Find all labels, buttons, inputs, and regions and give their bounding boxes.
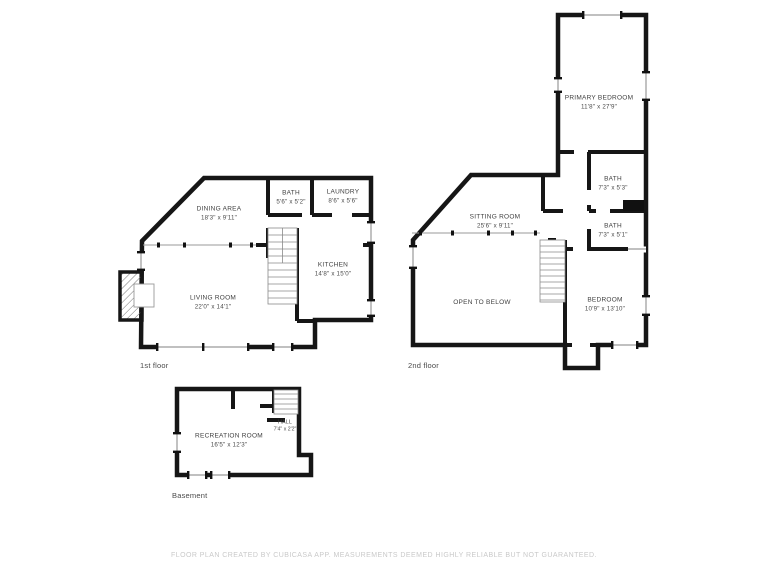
- room-label-bath-lower: BATH 7'3" x 5'1": [598, 221, 627, 240]
- basement-staircase: [274, 390, 298, 414]
- room-label-sitting-room: SITTING ROOM 25'6" x 9'11": [470, 212, 521, 231]
- room-label-primary-bedroom: PRIMARY BEDROOM 11'8" x 27'9": [565, 93, 634, 112]
- room-label-bath-upper: BATH 7'3" x 5'3": [598, 174, 627, 193]
- floor-plan-page: DINING AREA 18'3" x 9'11" BATH 5'6" x 5'…: [0, 0, 768, 576]
- room-label-laundry: LAUNDRY 8'6" x 5'6": [327, 187, 360, 206]
- room-label-kitchen: KITCHEN 14'8" x 15'0": [315, 260, 352, 279]
- room-label-dining-area: DINING AREA 18'3" x 9'11": [197, 204, 242, 223]
- basement-label: Basement: [172, 491, 207, 500]
- room-label-open-to-below: OPEN TO BELOW: [453, 298, 511, 308]
- room-label-bath-first: BATH 5'6" x 5'2": [276, 188, 305, 207]
- room-label-recreation-room: RECREATION ROOM 16'5" x 12'3": [195, 431, 263, 450]
- disclaimer-footer: FLOOR PLAN CREATED BY CUBICASA APP. MEAS…: [0, 552, 768, 559]
- floor-plan-drawing: [0, 0, 768, 576]
- room-label-hall: HALL 7'4" x 2'2": [274, 419, 297, 432]
- second-floor-label: 2nd floor: [408, 361, 439, 370]
- room-label-bedroom: BEDROOM 10'9" x 13'10": [585, 295, 625, 314]
- bath-fixture: [623, 200, 644, 211]
- first-floor-label: 1st floor: [140, 361, 168, 370]
- room-label-living-room: LIVING ROOM 22'0" x 14'1": [190, 293, 236, 312]
- second-floor-staircase: [540, 240, 565, 302]
- first-floor-staircase: [268, 228, 297, 304]
